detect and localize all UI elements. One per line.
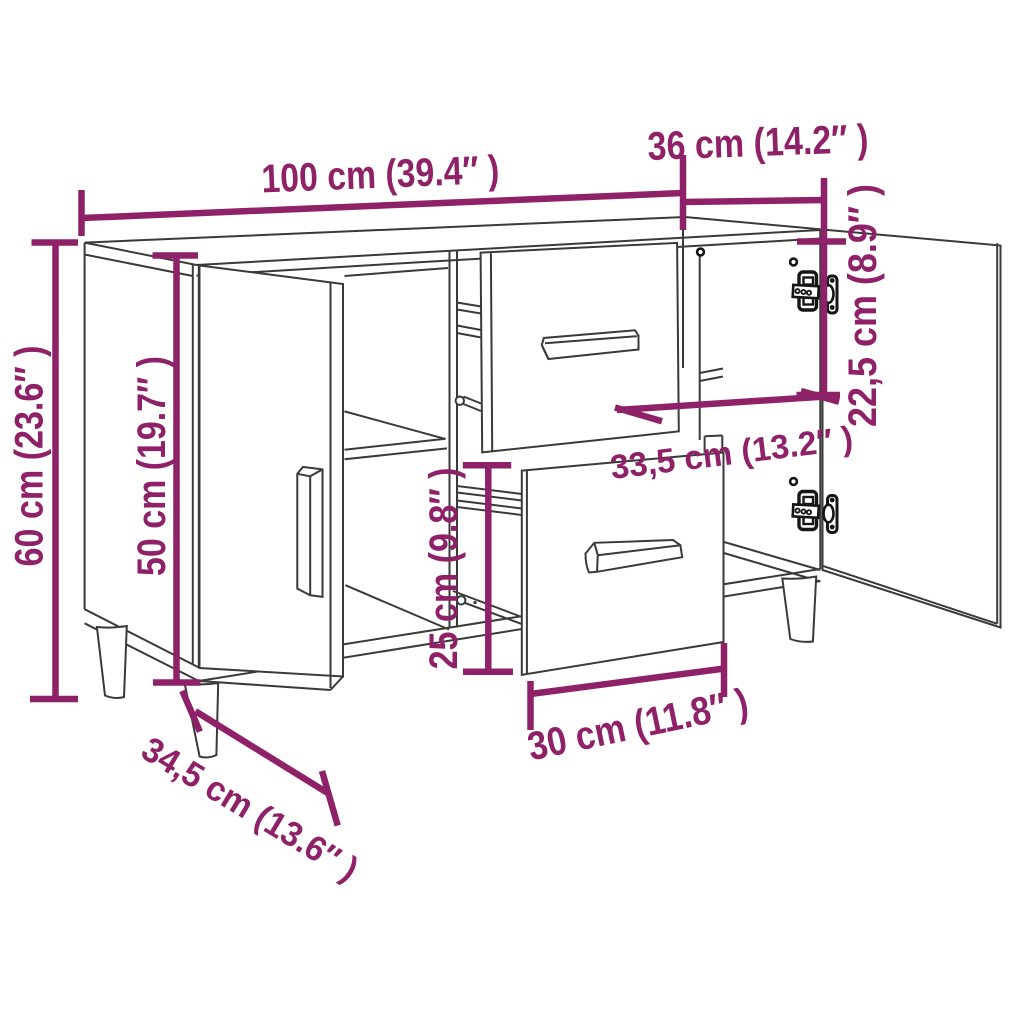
svg-text:25 cm (9.8″ ): 25 cm (9.8″ ) [420, 468, 465, 670]
svg-text:22,5 cm (8.9″ ): 22,5 cm (8.9″ ) [841, 184, 885, 427]
svg-text:36 cm (14.2″ ): 36 cm (14.2″ ) [647, 115, 869, 168]
svg-text:60 cm (23.6″ ): 60 cm (23.6″ ) [6, 346, 51, 567]
svg-text:100 cm (39.4″ ): 100 cm (39.4″ ) [261, 146, 501, 201]
svg-text:50 cm (19.7″ ): 50 cm (19.7″ ) [128, 356, 173, 576]
